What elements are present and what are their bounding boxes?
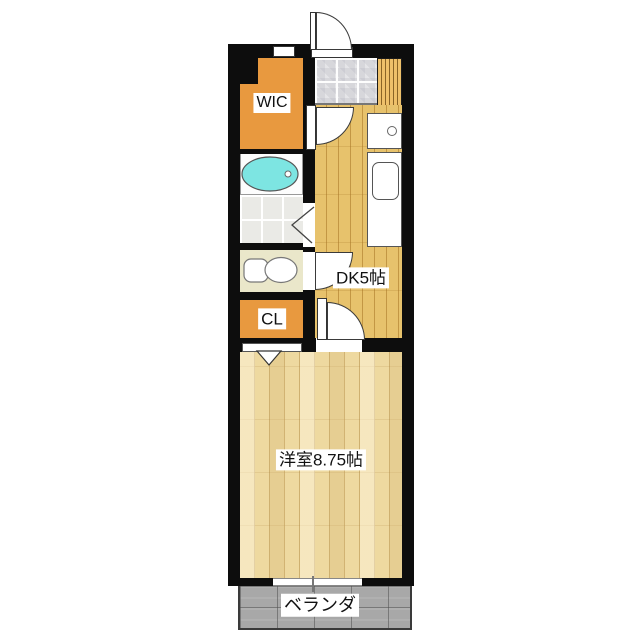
kitchen-sink-icon [372, 162, 399, 200]
balcony-window-center-tick [312, 576, 314, 592]
floorplan-canvas: WIC CL DK5帖 洋室8.75帖 ベランダ [0, 0, 640, 640]
genkan-edge-line [315, 103, 377, 105]
wic-corner-column [240, 58, 258, 84]
hall-door-leaf [306, 105, 316, 150]
wall-toilet-closet [240, 292, 303, 300]
drain-circle-icon [387, 126, 397, 136]
stove-or-washer-space [367, 113, 402, 149]
dining-kitchen-label: DK5帖 [333, 267, 389, 288]
entrance-door-swing-icon [316, 12, 352, 50]
toilet-icon [240, 250, 303, 292]
entrance-door-leaf [310, 12, 316, 50]
wic-label: WIC [253, 93, 290, 113]
closet-folding-door-icon [254, 351, 284, 367]
wall-left [228, 44, 240, 586]
bath-folding-door-icon [288, 203, 316, 247]
room-door-opening [316, 338, 362, 352]
wall-right [402, 44, 414, 586]
kitchen-counter [367, 152, 402, 247]
entrance-genkan-tiles [315, 58, 377, 105]
closet-label: CL [258, 308, 286, 329]
room-door-leaf [317, 298, 327, 340]
western-room-label: 洋室8.75帖 [276, 449, 366, 470]
shoe-cabinet [377, 58, 402, 108]
wall-wic-bath [240, 149, 303, 154]
bathtub-icon [240, 153, 303, 195]
balcony-window [273, 578, 362, 586]
balcony-label: ベランダ [281, 594, 359, 617]
toilet-door-opening [303, 252, 315, 290]
wic-window [273, 46, 295, 57]
